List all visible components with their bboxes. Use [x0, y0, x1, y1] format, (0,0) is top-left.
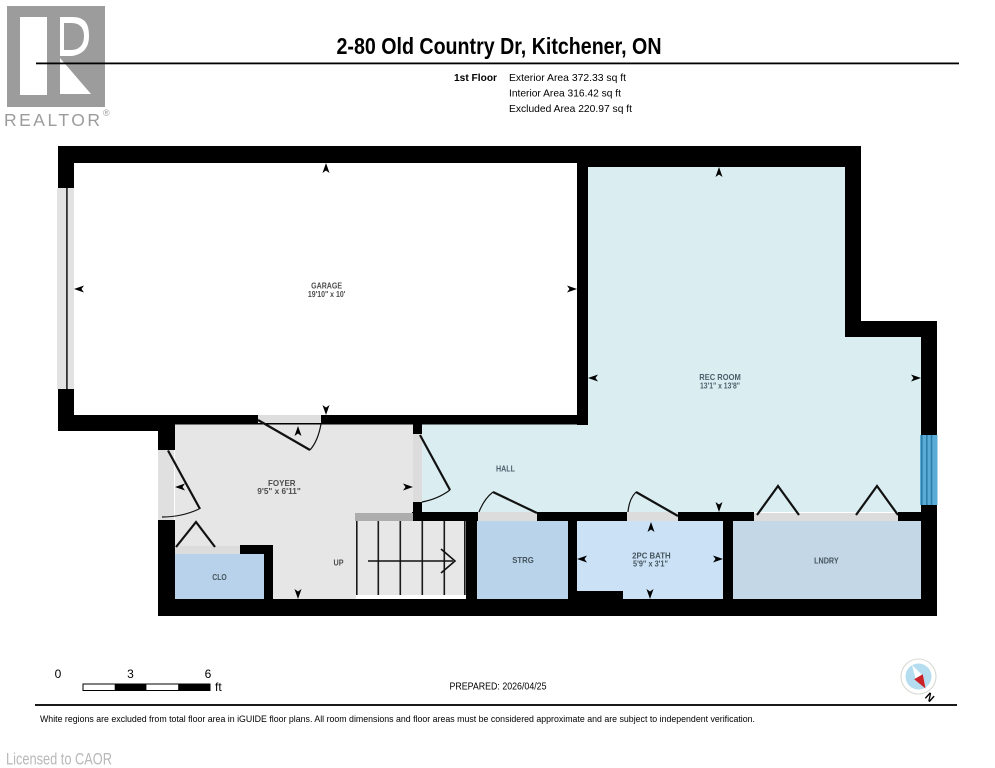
svg-text:6: 6 [205, 667, 212, 681]
svg-text:UP: UP [334, 558, 344, 568]
svg-text:Licensed to CAOR: Licensed to CAOR [6, 751, 112, 768]
svg-text:®: ® [103, 108, 110, 118]
svg-text:0: 0 [55, 667, 62, 681]
svg-text:19'10" x 10': 19'10" x 10' [308, 290, 346, 299]
svg-text:Exterior Area 372.33 sq ft: Exterior Area 372.33 sq ft [509, 72, 626, 84]
svg-text:CLO: CLO [212, 572, 227, 582]
svg-text:STRG: STRG [512, 555, 534, 565]
svg-text:2-80 Old Country Dr, Kitchener: 2-80 Old Country Dr, Kitchener, ON [337, 33, 662, 59]
svg-text:ft: ft [215, 680, 222, 694]
svg-text:HALL: HALL [496, 464, 515, 474]
svg-text:PREPARED: 2026/04/25: PREPARED: 2026/04/25 [450, 681, 547, 693]
svg-text:LNDRY: LNDRY [814, 555, 839, 565]
svg-text:1st Floor: 1st Floor [454, 72, 497, 84]
svg-text:White regions are excluded fro: White regions are excluded from total fl… [40, 714, 755, 724]
svg-text:13'1" x 13'8": 13'1" x 13'8" [700, 381, 740, 390]
svg-text:Excluded Area 220.97 sq ft: Excluded Area 220.97 sq ft [509, 103, 632, 115]
svg-text:5'9" x 3'1": 5'9" x 3'1" [633, 560, 668, 569]
svg-text:Interior Area 316.42 sq ft: Interior Area 316.42 sq ft [509, 88, 621, 100]
svg-text:3: 3 [127, 667, 134, 681]
svg-text:9'5" x 6'11": 9'5" x 6'11" [257, 487, 301, 496]
